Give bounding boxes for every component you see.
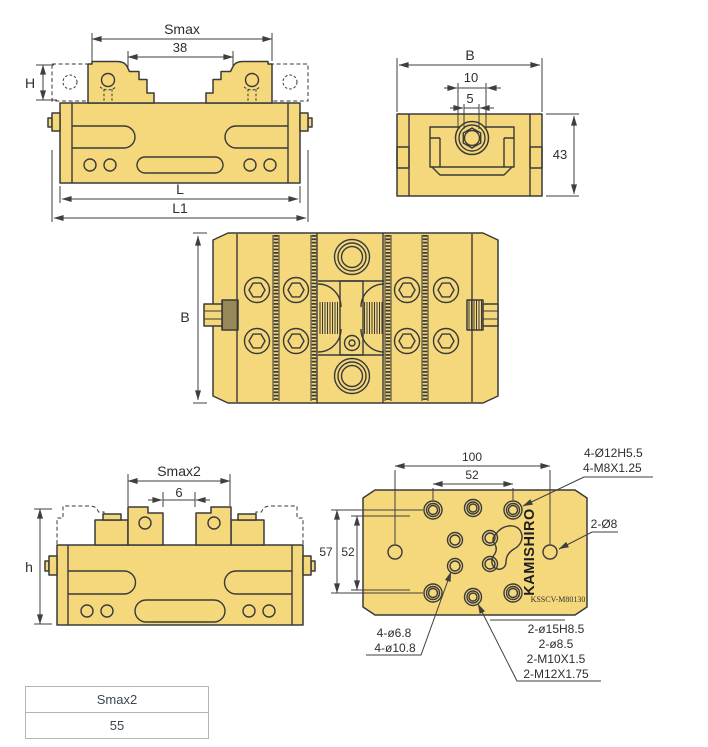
front-view: Smax 38 H L L1: [25, 21, 312, 222]
reversed-dim-6-label: 6: [175, 485, 182, 500]
dimension-100: 100: [395, 450, 550, 466]
brand-text: KAMISHIRO: [522, 508, 538, 595]
reversed-ghost-jaws: [57, 506, 303, 544]
plan-body-outline: [213, 233, 498, 403]
callout-corner-line2: 4-M8X1.25: [583, 461, 642, 475]
dimension-43: 43: [546, 114, 579, 196]
front-dim-l1-label: L1: [172, 200, 188, 216]
end-dim-b-label: B: [465, 47, 474, 63]
dimension-52-left: 52: [341, 516, 357, 590]
dimension-57: 57: [319, 510, 337, 593]
end-dim-5-label: 5: [466, 91, 473, 106]
end-body: [397, 114, 542, 196]
reversed-dim-smax2-label: Smax2: [157, 463, 201, 479]
callout-cluster-line2: 4-ø10.8: [374, 641, 416, 655]
end-dim-43-label: 43: [553, 147, 567, 162]
dimension-B-plan: B: [180, 233, 207, 403]
model-code-text: KSSCV-M80130: [531, 595, 586, 604]
dimension-38: 38: [128, 40, 233, 67]
front-dim-smax-label: Smax: [164, 21, 200, 37]
callout-center-line4: 2-M12X1.75: [523, 667, 589, 681]
reversed-jaw-view: Smax2 6 h: [25, 463, 315, 625]
callout-corner-holes: 4-Ø12H5.5 4-M8X1.25: [523, 446, 653, 506]
callout-corner-line1: 4-Ø12H5.5: [584, 446, 643, 460]
callout-center-line1: 2-ø15H8.5: [528, 622, 585, 636]
callout-center-line2: 2-ø8.5: [539, 637, 574, 651]
reversed-dim-h-label: h: [25, 559, 33, 575]
end-view: B 10 5 43: [397, 47, 579, 196]
spec-table: Smax2 55: [25, 686, 209, 739]
front-dim-38-label: 38: [173, 40, 187, 55]
dimension-52-top: 52: [433, 468, 513, 484]
bottom-dim-52-top-label: 52: [465, 468, 479, 482]
plan-dim-b-label: B: [180, 309, 189, 325]
dimension-6: 6: [148, 485, 210, 507]
vise-technical-drawing: Smax 38 H L L1: [0, 0, 708, 747]
reversed-body: [45, 545, 315, 625]
callout-center-line3: 2-M10X1.5: [527, 652, 586, 666]
front-jaws: [88, 62, 272, 104]
reversed-jaws: [95, 507, 264, 545]
bottom-dim-52-left-label: 52: [341, 545, 355, 559]
front-dim-l-label: L: [176, 181, 184, 197]
front-body: [48, 103, 312, 183]
front-dim-h-label: H: [25, 75, 35, 91]
spec-table-header: Smax2: [26, 687, 208, 712]
bottom-dim-100-label: 100: [462, 450, 482, 464]
callout-cluster-line1: 4-ø6.8: [377, 626, 412, 640]
callout-side-label: 2-Ø8: [591, 517, 618, 531]
plan-side-screw-left: [204, 300, 238, 330]
bottom-dim-57-label: 57: [319, 545, 333, 559]
bottom-view: KAMISHIRO KSSCV-M80130 100 52 57 52 4-Ø1…: [319, 446, 653, 681]
plan-view: B: [180, 233, 498, 403]
end-dim-10-label: 10: [464, 70, 478, 85]
spec-table-value: 55: [26, 712, 208, 738]
vise-technical-drawing-page: Smax 38 H L L1: [0, 0, 708, 747]
